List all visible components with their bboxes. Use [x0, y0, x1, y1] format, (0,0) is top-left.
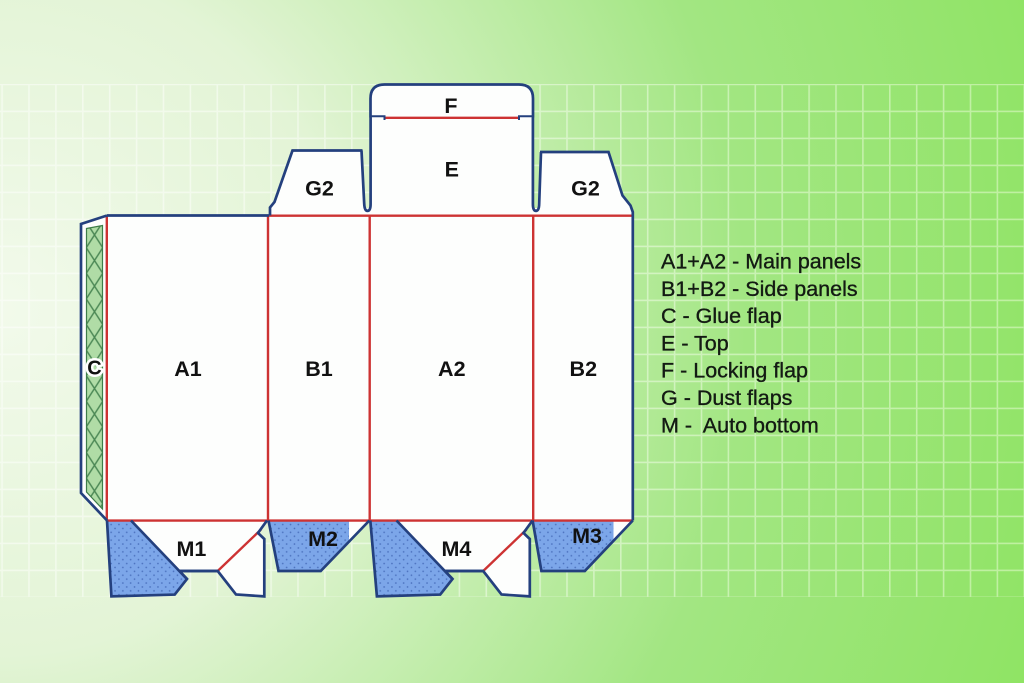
- svg-text:A1: A1: [174, 357, 202, 381]
- svg-text:M - Auto bottom: M - Auto bottom: [661, 413, 819, 437]
- svg-text:G2: G2: [571, 177, 600, 201]
- svg-text:M2: M2: [308, 527, 338, 551]
- svg-text:A2: A2: [438, 357, 466, 381]
- svg-text:B1+B2 - Side panels: B1+B2 - Side panels: [661, 277, 858, 301]
- svg-text:E - Top: E - Top: [661, 331, 729, 355]
- svg-text:C: C: [87, 358, 101, 380]
- svg-text:G2: G2: [305, 177, 334, 201]
- svg-text:G - Dust flaps: G - Dust flaps: [661, 386, 792, 410]
- svg-text:M4: M4: [441, 537, 471, 561]
- svg-text:C - Glue flap: C - Glue flap: [661, 304, 782, 328]
- svg-text:M1: M1: [176, 537, 206, 561]
- svg-text:B2: B2: [570, 357, 598, 381]
- svg-text:B1: B1: [305, 357, 333, 381]
- svg-text:A1+A2 - Main panels: A1+A2 - Main panels: [661, 250, 861, 274]
- svg-text:F: F: [444, 94, 457, 118]
- svg-text:F - Locking flap: F - Locking flap: [661, 359, 808, 383]
- svg-text:M3: M3: [572, 524, 602, 548]
- svg-text:E: E: [445, 158, 459, 182]
